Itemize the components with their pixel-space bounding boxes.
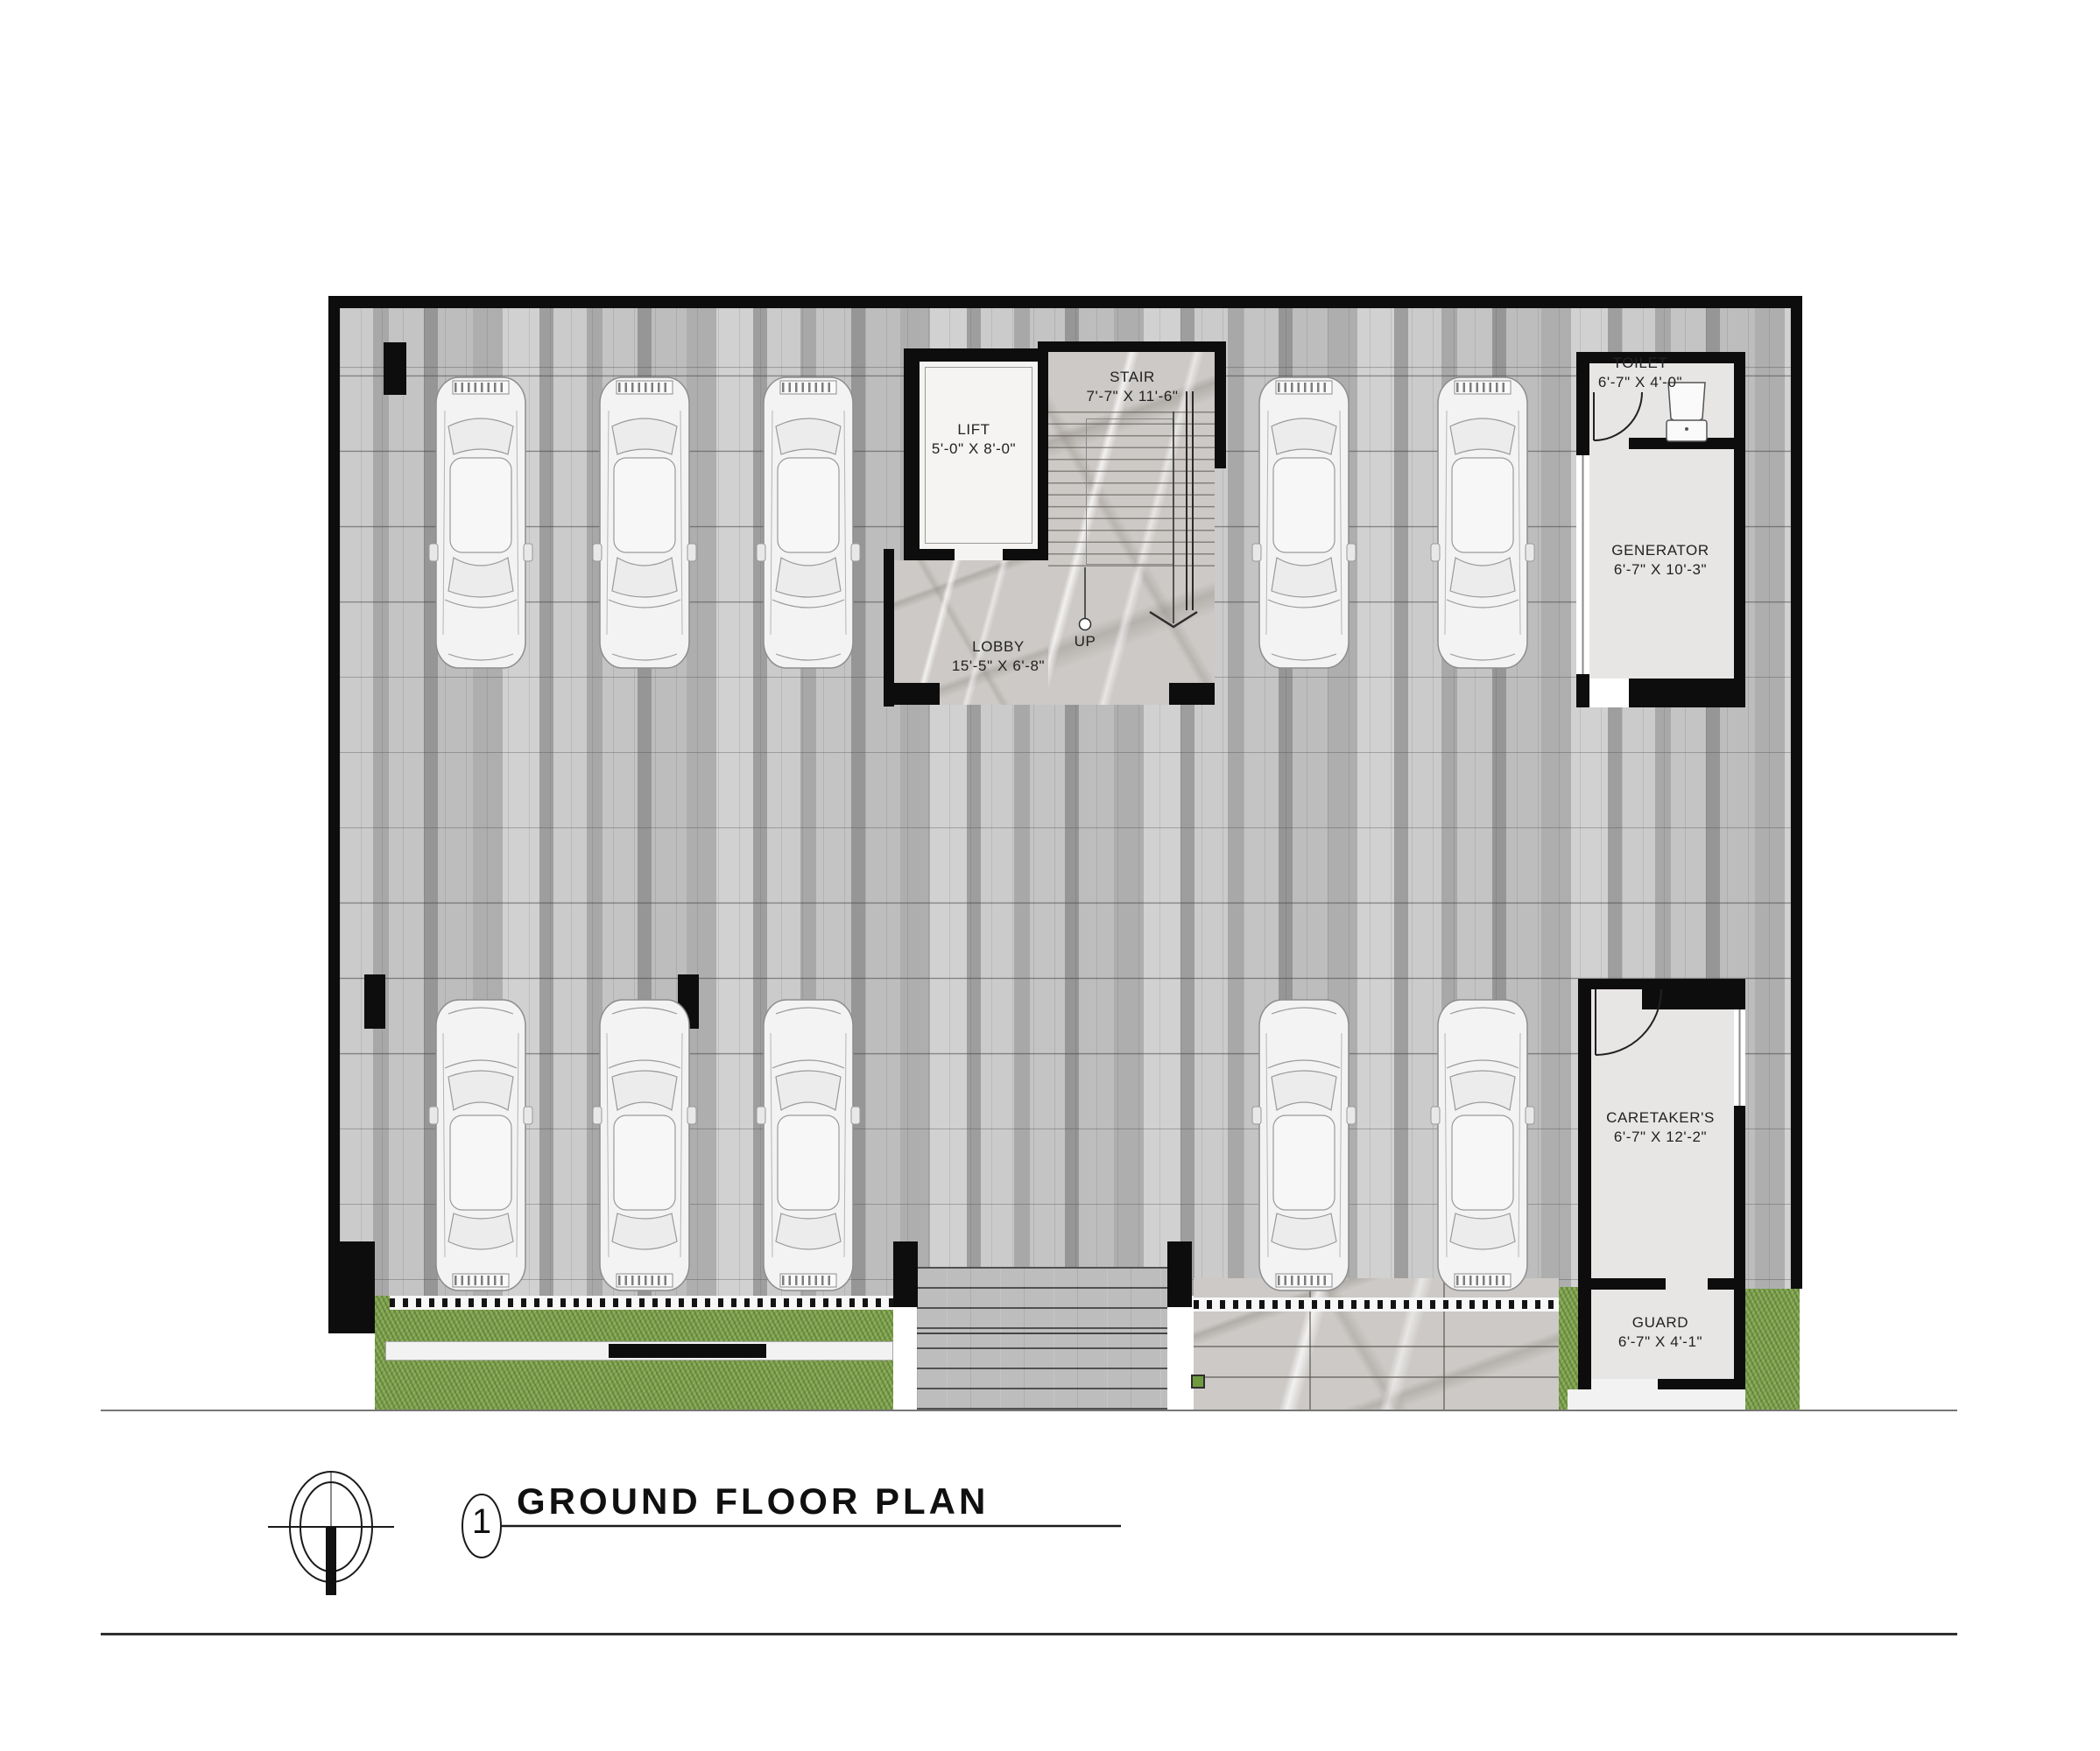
stair-top-wall: [1038, 341, 1226, 352]
toilet-name: TOILET: [1598, 354, 1682, 373]
drain-grate-right: [1194, 1297, 1559, 1311]
walkway-joint-2: [1194, 1376, 1559, 1378]
generator-door-gap: [1589, 679, 1629, 707]
up-text: UP: [1075, 632, 1096, 651]
generator-dims: 6'-7" X 10'-3": [1611, 560, 1709, 580]
entrance-ramp-break-line: [917, 1333, 1167, 1334]
pillar-bottom-row-1: [364, 974, 385, 1029]
lift-dims: 5'-0" X 8'-0": [932, 440, 1016, 459]
label-guard: GUARD 6'-7" X 4'-1": [1618, 1313, 1702, 1352]
stair-name: STAIR: [1086, 368, 1178, 387]
outer-wall-bottom-left-stub: [328, 1241, 375, 1333]
lobby-left-wall: [884, 549, 894, 707]
stair-right-wall: [1215, 341, 1226, 468]
caretaker-name: CARETAKER'S: [1606, 1108, 1715, 1128]
pillar-top-left: [384, 342, 406, 395]
sheet-number: 1: [462, 1502, 501, 1542]
stair-dims: 7'-7" X 11'-6": [1086, 387, 1178, 406]
lawn-right-column: [1745, 1289, 1800, 1410]
lift-door-gap: [955, 549, 1003, 560]
generator-louver-window: [1576, 455, 1589, 674]
caretaker-header-block: [1642, 979, 1745, 1009]
label-generator: GENERATOR 6'-7" X 10'-3": [1611, 541, 1709, 580]
north-symbol-icon: [268, 1472, 394, 1595]
lobby-corner-right: [1169, 683, 1215, 705]
guard-walkway: [1568, 1389, 1745, 1410]
caretaker-dims: 6'-7" X 12'-2": [1606, 1128, 1715, 1147]
entrance-pillar-right: [1167, 1241, 1192, 1307]
guard-floor-notch: [1591, 1379, 1658, 1389]
entrance-ramp: [917, 1267, 1167, 1410]
planter-box: [1191, 1375, 1205, 1389]
outer-wall-left: [328, 296, 340, 1333]
walkway-joint-1: [1194, 1346, 1559, 1347]
sheet-title: GROUND FLOOR PLAN: [517, 1480, 989, 1522]
stair-flight-outline: [1086, 418, 1173, 565]
lobby-name: LOBBY: [952, 637, 1045, 657]
garden-wall-segment: [609, 1344, 766, 1358]
lobby-corner-left: [894, 683, 940, 705]
outer-wall-right: [1791, 296, 1802, 1289]
toilet-dims: 6'-7" X 4'-0": [1598, 373, 1682, 392]
caretaker-window: [1734, 1009, 1745, 1106]
guard-name: GUARD: [1618, 1313, 1702, 1333]
entrance-pillar-left: [893, 1241, 918, 1307]
label-lift: LIFT 5'-0" X 8'-0": [932, 420, 1016, 459]
label-caretaker: CARETAKER'S 6'-7" X 12'-2": [1606, 1108, 1715, 1147]
caretaker-guard-door-gap: [1666, 1278, 1708, 1290]
floor-plan-sheet: LIFT 5'-0" X 8'-0" STAIR 7'-7" X 11'-6" …: [0, 0, 2100, 1751]
stair-rail: [1186, 391, 1194, 610]
pillar-bottom-row-2: [678, 974, 699, 1029]
guard-dims: 6'-7" X 4'-1": [1618, 1333, 1702, 1352]
toilet-door-gap: [1589, 438, 1629, 449]
outer-wall-top: [328, 296, 1802, 308]
label-lobby: LOBBY 15'-5" X 6'-8": [952, 637, 1045, 676]
generator-name: GENERATOR: [1611, 541, 1709, 560]
label-stair: STAIR 7'-7" X 11'-6": [1086, 368, 1178, 406]
sheet-bottom-line: [101, 1633, 1957, 1635]
label-toilet: TOILET 6'-7" X 4'-0": [1598, 354, 1682, 392]
drain-grate-left: [390, 1296, 893, 1310]
label-up: UP: [1075, 632, 1096, 651]
lobby-dims: 15'-5" X 6'-8": [952, 657, 1045, 676]
ground-line: [101, 1410, 1957, 1411]
lift-name: LIFT: [932, 420, 1016, 440]
